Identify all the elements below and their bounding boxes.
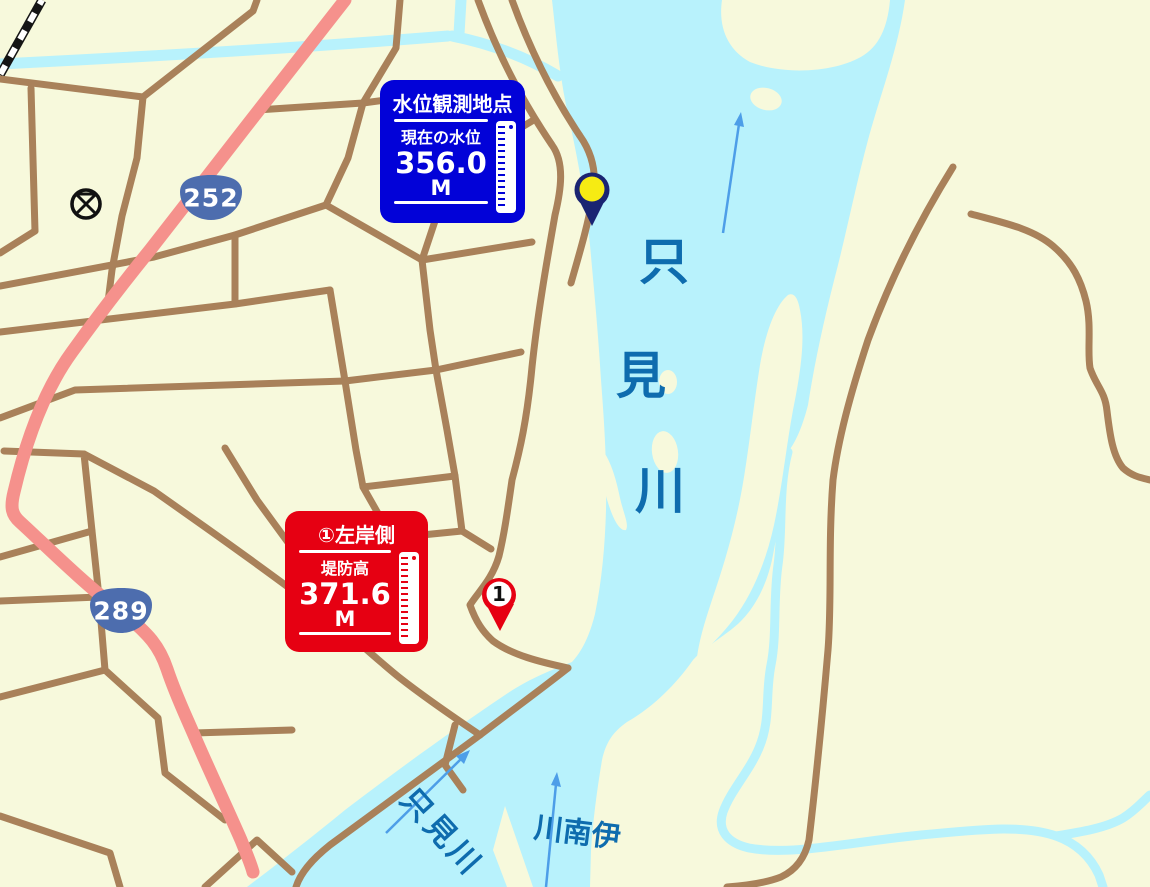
route-shield-252-number: 252 bbox=[183, 186, 238, 211]
national-route-road bbox=[12, 0, 345, 872]
levee-height-panel: ①左岸側 堤防高 371.6 M bbox=[285, 511, 428, 652]
water-gauge-icon bbox=[496, 121, 516, 213]
levee-pin-number: 1 bbox=[492, 584, 506, 604]
water-level-value: 356.0 bbox=[395, 148, 487, 178]
levee-gauge-icon bbox=[399, 552, 419, 644]
main-river-label-char3: 川 bbox=[635, 466, 685, 516]
water-level-panel-title: 水位観測地点 bbox=[380, 80, 525, 117]
divider bbox=[299, 632, 391, 635]
water-level-unit: M bbox=[431, 178, 452, 199]
divider bbox=[394, 201, 488, 204]
levee-height-label: 堤防高 bbox=[321, 555, 369, 579]
route-shield-289-number: 289 bbox=[93, 599, 148, 624]
water-level-panel: 水位観測地点 現在の水位 356.0 M bbox=[380, 80, 525, 223]
main-river-label-char1: 只 bbox=[639, 237, 689, 287]
police-station-icon bbox=[72, 190, 100, 218]
water-level-label: 現在の水位 bbox=[401, 124, 481, 148]
levee-height-unit: M bbox=[335, 609, 356, 630]
flood-map[interactable]: 只 見 川 只見川 伊南川 252 289 1 水位観測地点 現在の水位 356… bbox=[0, 0, 1150, 887]
divider bbox=[394, 119, 488, 122]
divider bbox=[299, 550, 391, 553]
main-river-label-char2: 見 bbox=[616, 351, 666, 401]
map-canvas bbox=[0, 0, 1150, 887]
levee-panel-title: ①左岸側 bbox=[285, 511, 428, 548]
levee-height-value: 371.6 bbox=[299, 579, 391, 609]
